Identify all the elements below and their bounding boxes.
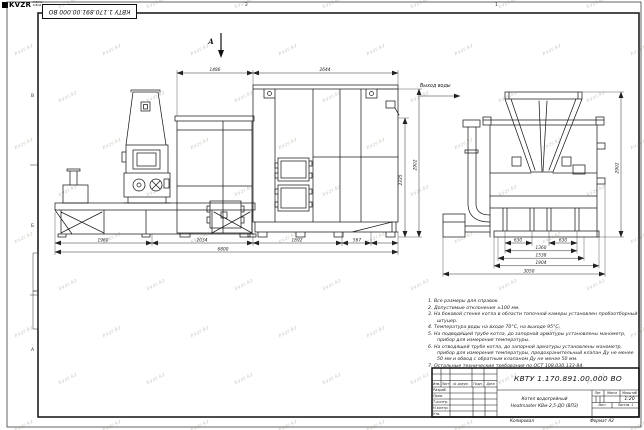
lit-label: Лит. [592, 390, 604, 396]
boiler-skid [255, 222, 398, 237]
dim-label: 630 [514, 237, 522, 243]
dim-label: 2335 [398, 174, 404, 185]
outlet-pipe [443, 120, 490, 237]
dim-label: 3050 [524, 268, 535, 274]
dim-label: 1486 [210, 67, 221, 73]
boiler-doors [275, 158, 312, 211]
col-sign: Подп. [472, 381, 484, 388]
title-block-doc-number: КВТУ 1.170.891.00.000 ВО [497, 369, 639, 388]
boiler-body [253, 85, 399, 222]
dim-label: 1692 [292, 237, 303, 243]
fuel-feed-tower [122, 90, 170, 203]
dim-label: 1960 [98, 237, 109, 243]
water-outlet-label: Выход воды [420, 83, 451, 89]
note-item: 6. На отводящей трубе котла, до запорной… [428, 345, 638, 364]
main-view-dimensions: 1486 2644 2335 2902 1960 2034 1692 567 6… [55, 67, 422, 255]
dim-label: 2902 [413, 159, 419, 170]
zone-marker: Б [31, 224, 34, 229]
feeder-platform [55, 203, 256, 237]
dim-label: 1360 [536, 245, 547, 251]
sheet-label: Лист [592, 403, 612, 409]
main-view: А [55, 33, 399, 237]
dim-label: 2034 [197, 237, 208, 243]
row-approved: Утв. [433, 411, 450, 417]
top-left-repeat-stamp: КВТУ 1.170.891.00.000 ВО [42, 4, 137, 19]
end-view: Выход воды [420, 83, 605, 237]
technical-notes: 1. Все размеры для справок. 2. Допустимы… [428, 299, 638, 371]
dim-label: 6800 [218, 246, 229, 252]
format-label: Формат А2 [572, 418, 632, 423]
col-doc: № докум. [450, 381, 472, 388]
sheets-label: Листов [618, 403, 630, 407]
zone-marker: 1 [495, 3, 498, 8]
note-item: 1. Все размеры для справок. [428, 299, 638, 305]
feeder-stand [63, 169, 88, 203]
sheets-value: 1 [631, 403, 633, 407]
dim-label: 567 [353, 237, 361, 243]
boiler-end-body [483, 117, 605, 237]
product-name-line2: Heatmaster КВм-2,5-ДО (ВП3) [511, 404, 579, 410]
dim-label: 2902 [615, 162, 621, 173]
sheets-cell: Листов 1 [612, 403, 639, 409]
fuel-bin [175, 116, 254, 237]
dim-label: 1538 [536, 253, 547, 259]
section-view-label: А [207, 37, 214, 46]
zone-marker: А [31, 348, 34, 353]
note-item: 5. На подводящей трубе котла, до запорно… [428, 332, 638, 344]
note-item: 2. Допустимые отклонения ±100 мм. [428, 306, 638, 312]
dim-label: 2644 [320, 67, 331, 73]
copied-label: Копировал [492, 418, 552, 423]
note-item: 4. Температура воды на входе 70°С, на вы… [428, 325, 638, 331]
mass-label: Масса [604, 390, 620, 396]
zone-marker: 2 [245, 3, 248, 8]
dim-label: 630 [559, 237, 567, 243]
product-name: Котел водогрейный Heatmaster КВм-2,5-ДО … [497, 391, 592, 416]
col-date: Дата [484, 381, 497, 388]
hopper [505, 92, 582, 172]
dim-label: 1904 [536, 260, 547, 266]
drawing-sheet: А 1486 2644 2335 2902 1960 2034 1692 567… [0, 0, 644, 430]
note-item: 3. На боковой стенке котла в области топ… [428, 312, 638, 324]
zone-marker: В [31, 94, 34, 99]
